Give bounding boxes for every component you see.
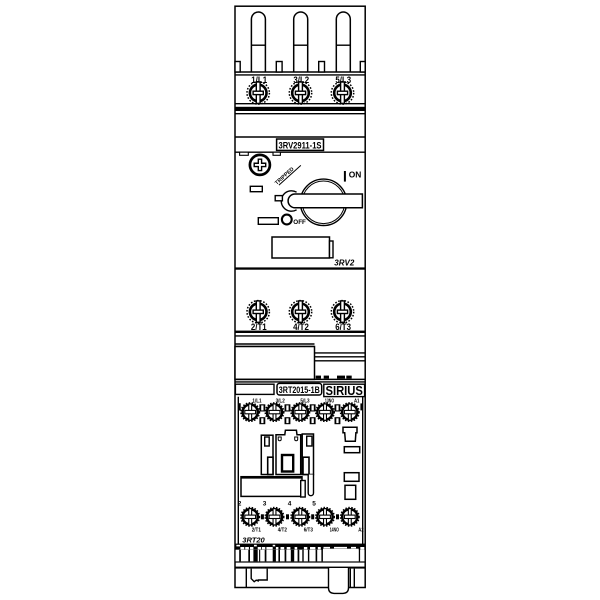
svg-text:6/T3: 6/T3	[335, 322, 351, 332]
svg-text:3RT2015-1B: 3RT2015-1B	[279, 385, 320, 395]
svg-text:3RT20: 3RT20	[242, 535, 265, 544]
svg-text:A1: A1	[354, 398, 360, 404]
svg-text:2/T1: 2/T1	[252, 527, 261, 533]
svg-text:6/T3: 6/T3	[304, 527, 313, 533]
svg-text:3RV2911-1S: 3RV2911-1S	[279, 140, 322, 151]
svg-text:5: 5	[312, 500, 316, 507]
svg-text:4/T2: 4/T2	[293, 322, 309, 332]
svg-text:4/T2: 4/T2	[278, 527, 287, 533]
svg-text:3RV2: 3RV2	[334, 259, 355, 268]
svg-text:A2: A2	[358, 527, 364, 533]
svg-text:SIRIUS: SIRIUS	[325, 384, 363, 398]
svg-text:14NO: 14NO	[330, 527, 339, 533]
svg-text:OFF: OFF	[293, 219, 306, 226]
svg-text:ON: ON	[349, 170, 362, 180]
svg-text:1/L1: 1/L1	[252, 398, 261, 404]
svg-text:4: 4	[288, 500, 292, 507]
svg-text:3: 3	[263, 500, 267, 507]
svg-text:2/T1: 2/T1	[251, 322, 267, 332]
svg-text:2: 2	[238, 500, 242, 507]
